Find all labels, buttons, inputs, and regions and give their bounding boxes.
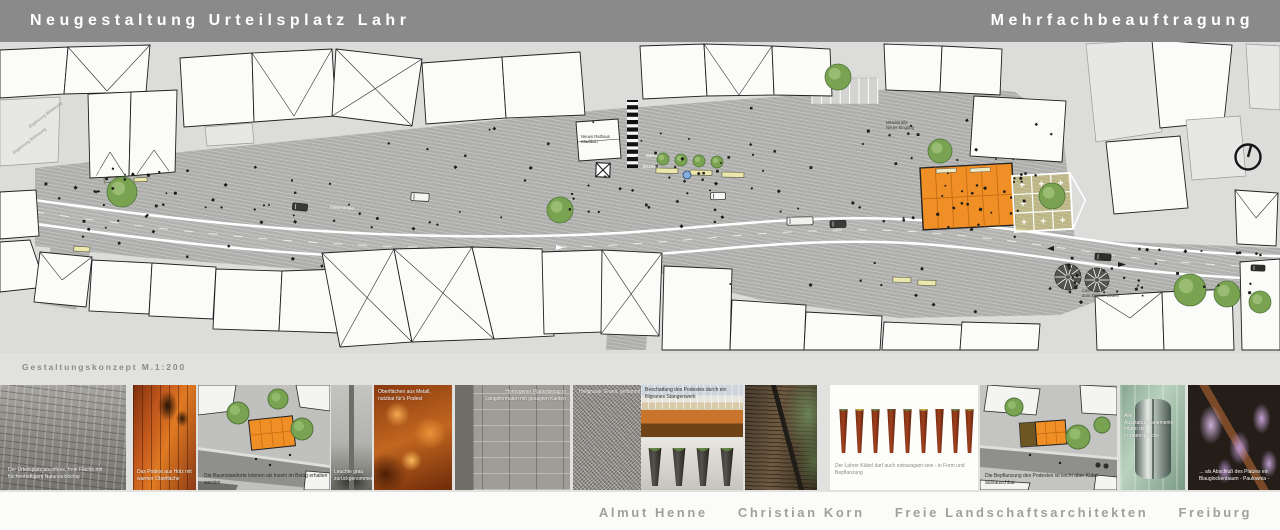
- footer: Almut Henne Christian Korn Freie Landsch…: [0, 492, 1280, 530]
- svg-text:Neuer Eingang: Neuer Eingang: [886, 125, 915, 130]
- kuebel-planter: [854, 409, 865, 453]
- photo-caption: Beschattung des Podestes durch ein filig…: [645, 387, 741, 400]
- gallery-photo-light-pole: Leuchte grau zurückgenommen: [331, 385, 372, 490]
- competition-board: { "header": { "title_left": "Neugestaltu…: [0, 0, 1280, 530]
- plan-caption: Gestaltungskonzept M.1:200: [22, 362, 186, 372]
- gallery-photo-corten-metal: Oberflächen aus Metall, nutzbar für's Po…: [374, 385, 452, 490]
- facade-texture: [745, 385, 817, 490]
- kuebel-planter: [918, 409, 929, 453]
- dark-planters-photo: [641, 438, 743, 490]
- kuebel-planter: [934, 409, 945, 453]
- board-title: Neugestaltung Urteilsplatz Lahr: [30, 0, 410, 42]
- gallery-photo-litter-bin: Alle Ausstattungselemente folgen der For…: [1120, 385, 1185, 490]
- photo-caption: Die Bepflanzung des Podestes ist leicht …: [985, 473, 1113, 486]
- site-plan: Linde mit Bänken Neues Rathaus Stadtbau …: [0, 42, 1280, 353]
- credit-name: Almut Henne: [599, 505, 708, 520]
- kuebel-planter: [950, 409, 961, 453]
- gallery-photo-paulownia: ... als Abschluß des Platzes ein Blauglo…: [1188, 385, 1280, 490]
- svg-text:Zum Kleinen Löwen: Zum Kleinen Löwen: [1082, 293, 1120, 298]
- kuebel-planter: [870, 409, 881, 453]
- photo-caption: Das Podest aus Holz mit warmer Oberfläch…: [137, 469, 193, 482]
- planter-cone: [695, 448, 711, 486]
- gallery-photo-corten-facade: [745, 385, 817, 490]
- gallery-render-plaza-1: Die Baumstandorte können als Inseln im B…: [198, 385, 330, 490]
- kuebel-planter: [902, 409, 913, 453]
- board-subtitle: Mehrfachbeauftragung: [991, 0, 1254, 42]
- footer-credits: Almut Henne Christian Korn Freie Landsch…: [599, 505, 1252, 520]
- litter-bin-cylinder: [1135, 399, 1171, 479]
- plan-label-brunnen: Brunnen: [643, 164, 660, 169]
- plan-label-baenke: Bänke: [646, 153, 659, 158]
- planter-cone: [671, 448, 687, 486]
- gallery-photo-stone-slabs: Homogener Plattenbelag in Längsformaten …: [455, 385, 570, 490]
- kuebel-planter: [964, 409, 975, 453]
- gallery-photo-cobblestone: Der Urteilsplatz als offene, freie Fläch…: [0, 385, 126, 490]
- plan-graphics: [0, 42, 1280, 350]
- gallery-photo-kuebel-row: Der Lahrer Kübel darf auch extravagant s…: [830, 385, 978, 490]
- planter-cone: [647, 448, 663, 486]
- planter-cone: [719, 448, 735, 486]
- photo-caption: Homogener Plattenbelag in Längsformaten …: [482, 389, 566, 402]
- gallery-photo-wood-bench: Das Podest aus Holz mit warmer Oberfläch…: [133, 385, 196, 490]
- kuebel-planter: [838, 409, 849, 453]
- photo-caption: Leuchte grau zurückgenommen: [334, 469, 370, 482]
- credit-name: Freiburg: [1178, 505, 1252, 520]
- photo-caption: Der Lahrer Kübel darf auch extravagant s…: [835, 463, 977, 476]
- credit-name: Freie Landschaftsarchitekten: [895, 505, 1148, 520]
- photo-caption: ... als Abschluß des Platzes ein Blauglo…: [1194, 469, 1274, 482]
- svg-text:Bänken: Bänken: [93, 173, 108, 178]
- photo-caption: Alle Ausstattungselemente folgen der For…: [1124, 413, 1180, 439]
- gallery-render-plaza-2: Die Bepflanzung des Podestes ist leicht …: [980, 385, 1117, 490]
- kuebel-planter: [886, 409, 897, 453]
- svg-text:Stadtbau: Stadtbau: [581, 139, 598, 144]
- photo-caption: Oberflächen aus Metall, nutzbar für's Po…: [378, 389, 448, 402]
- photo-caption: Die Baumstandorte können als Inseln im B…: [204, 473, 328, 486]
- credit-name: Christian Korn: [738, 505, 865, 520]
- gallery-photo-pergola-planters: Beschattung des Podestes durch ein filig…: [641, 385, 743, 490]
- photo-caption: Der Urteilsplatz als offene, freie Fläch…: [8, 467, 118, 480]
- title-bar: Neugestaltung Urteilsplatz Lahr Mehrfach…: [0, 0, 1280, 42]
